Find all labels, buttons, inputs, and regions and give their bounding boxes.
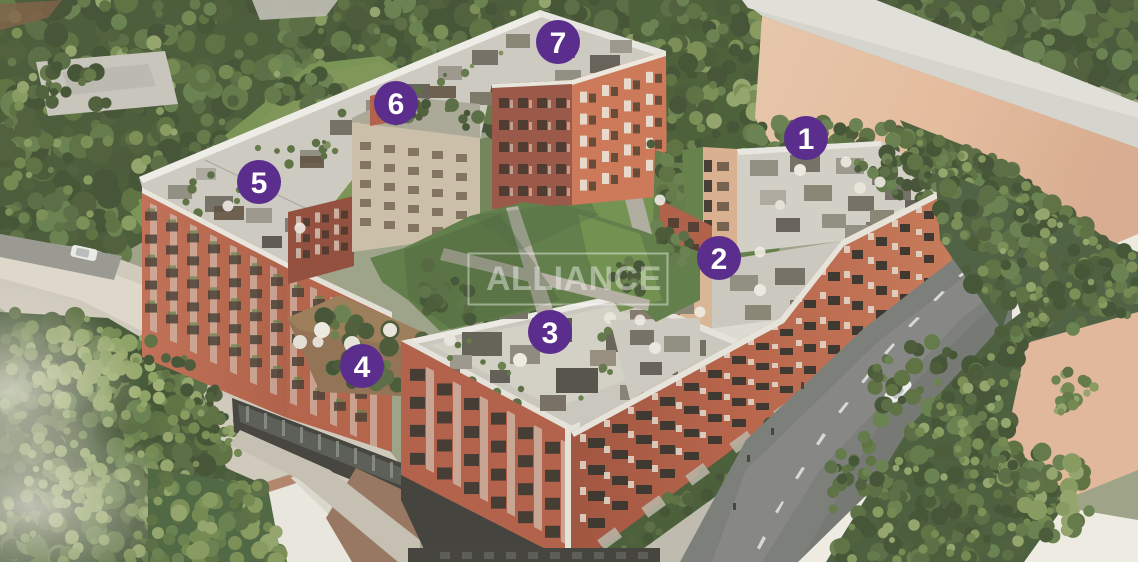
svg-text:3: 3: [542, 317, 559, 350]
svg-text:2: 2: [711, 243, 728, 276]
svg-text:1: 1: [798, 123, 815, 156]
svg-text:5: 5: [251, 167, 268, 200]
svg-text:7: 7: [550, 27, 567, 60]
svg-text:ALLIANCE: ALLIANCE: [486, 260, 662, 298]
svg-text:4: 4: [354, 351, 371, 384]
svg-text:6: 6: [388, 88, 405, 121]
